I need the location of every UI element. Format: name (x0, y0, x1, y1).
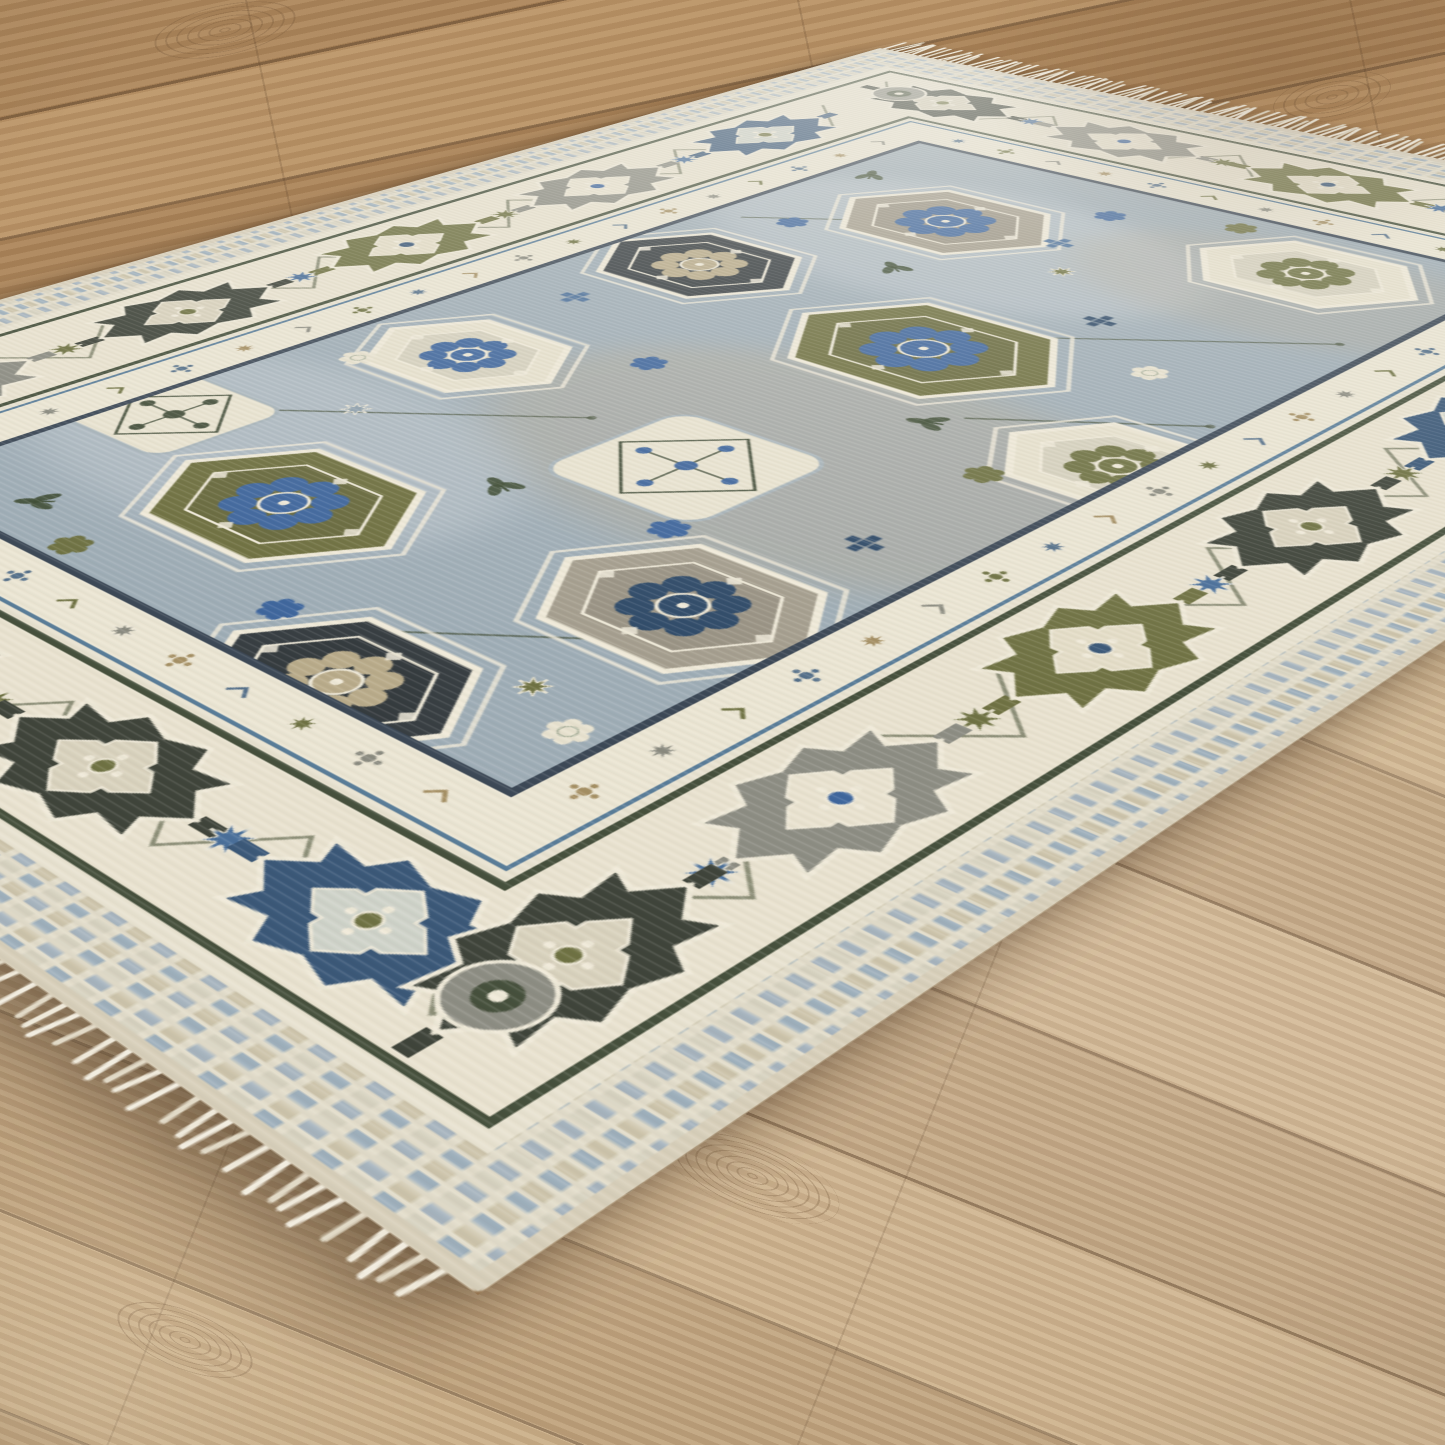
wood-knot (104, 1284, 266, 1396)
rug-product-photo (0, 0, 1445, 1445)
wood-knot (146, 0, 304, 71)
